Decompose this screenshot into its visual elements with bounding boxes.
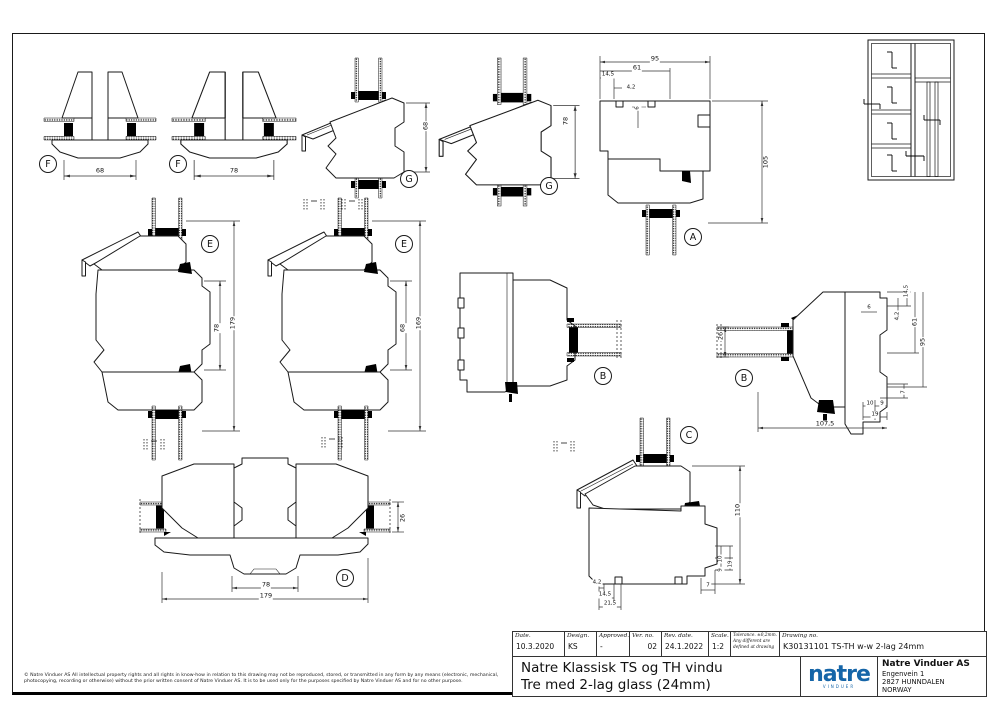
dim-g2-height: 78 xyxy=(563,116,570,126)
section-label-f1: F xyxy=(39,155,57,173)
logo-cell: natre VINDUER xyxy=(800,656,878,697)
dim-e2-inner: 68 xyxy=(400,323,407,333)
drawing-title-line1: Natre Klassisk TS og TH vindu xyxy=(513,657,800,677)
dim-a-4-2: 4,2 xyxy=(626,85,637,92)
field-approved: Approved. - xyxy=(596,631,630,657)
dim-b2-95: 95 xyxy=(920,337,927,347)
dim-g1-height: 68 xyxy=(423,121,430,131)
glass-break-mark xyxy=(138,438,170,452)
dim-a-105: 105 xyxy=(763,155,770,169)
dim-d-glass: 26 xyxy=(400,513,407,523)
dim-c-4-2: 4,2 xyxy=(592,580,603,587)
field-drawing-no: Drawing no. K30131101 TS-TH w-w 2-lag 24… xyxy=(779,631,987,657)
dim-b2-10: 10 xyxy=(866,401,875,408)
tolerance-line1: Tolerance. ±0,2mm. xyxy=(731,632,779,638)
field-date: Date. 10.3.2020 xyxy=(512,631,565,657)
glass-break-mark xyxy=(336,198,368,212)
section-label-e2: E xyxy=(395,235,413,253)
dim-c-10: 10 xyxy=(718,555,725,564)
field-approved-value: - xyxy=(597,640,629,651)
section-cut-marks xyxy=(864,52,940,171)
field-ver-no: Ver. no. 02 xyxy=(629,631,662,657)
section-label-d: D xyxy=(336,569,354,587)
dim-a-61: 61 xyxy=(632,65,642,72)
drawing-no-value: K30131101 TS-TH w-w 2-lag 24mm xyxy=(780,640,986,651)
dim-e1-inner: 78 xyxy=(214,323,221,333)
section-label-e1: E xyxy=(201,235,219,253)
section-g2-drawing xyxy=(437,58,585,206)
dim-b2-glass: 26 xyxy=(718,331,725,341)
dim-f1-width: 68 xyxy=(95,168,105,175)
glass-break-mark xyxy=(298,198,330,212)
dim-d-total: 179 xyxy=(259,593,273,600)
dim-c-21-5: 21,5 xyxy=(603,601,617,608)
company-address1: Engenvein 1 xyxy=(878,670,986,678)
section-label-b1: B xyxy=(594,367,612,385)
section-label-a: A xyxy=(684,228,702,246)
field-date-label: Date. xyxy=(513,632,564,640)
dim-c-9: 9 xyxy=(718,567,725,573)
field-ver-no-value: 02 xyxy=(630,640,661,651)
company-address2: 2827 HUNNDALEN xyxy=(878,678,986,686)
copyright-line1: © Natre Vinduer AS All intellectual prop… xyxy=(24,673,504,679)
section-label-c: C xyxy=(680,426,698,444)
dim-e2-total: 169 xyxy=(416,316,423,330)
dim-c-14-5: 14,5 xyxy=(598,592,612,599)
field-scale: Scale. 1:2 xyxy=(708,631,731,657)
dim-f2-width: 78 xyxy=(229,168,239,175)
company-address3: NORWAY xyxy=(878,686,986,694)
dim-a-6: 6 xyxy=(635,105,642,111)
field-rev-date: Rev. date. 24.1.2022 xyxy=(661,631,709,657)
field-design-value: KS xyxy=(565,640,596,651)
copyright-notice: © Natre Vinduer AS All intellectual prop… xyxy=(24,673,504,685)
field-design-label: Design. xyxy=(565,632,596,640)
copyright-line2: photocopying, recording or otherwise) wi… xyxy=(24,679,504,685)
field-design: Design. KS xyxy=(564,631,597,657)
tolerance-line3: defined at drawing xyxy=(731,644,779,650)
glass-break-mark xyxy=(548,440,580,454)
dim-a-14-5: 14,5 xyxy=(601,72,615,79)
dim-d-inner: 78 xyxy=(261,582,271,589)
window-elevation-keyplan xyxy=(866,38,961,186)
dim-b2-19: 19 xyxy=(871,412,880,419)
field-scale-value: 1:2 xyxy=(709,640,730,651)
company-cell: Natre Vinduer AS Engenvein 1 2827 HUNNDA… xyxy=(877,656,987,697)
section-a-drawing xyxy=(598,50,773,256)
dim-b2-7: 7 xyxy=(901,389,908,395)
dim-c-7: 7 xyxy=(705,583,711,590)
dim-b2-total: 107,5 xyxy=(815,421,836,428)
natre-logo: natre xyxy=(801,664,877,686)
dim-c-110: 110 xyxy=(735,503,742,517)
section-label-f2: F xyxy=(169,155,187,173)
dim-b2-61: 61 xyxy=(912,317,919,327)
field-rev-date-value: 24.1.2022 xyxy=(662,640,708,651)
field-ver-no-label: Ver. no. xyxy=(630,632,661,640)
field-date-value: 10.3.2020 xyxy=(513,640,564,651)
dim-e1-total: 179 xyxy=(230,316,237,330)
dim-b2-4-2: 4,2 xyxy=(895,311,902,322)
field-approved-label: Approved. xyxy=(597,632,629,640)
company-name: Natre Vinduer AS xyxy=(878,657,986,670)
dim-b2-14-5: 14,5 xyxy=(904,284,911,298)
natre-logo-sub: VINDUER xyxy=(801,684,877,689)
drawing-title-line2: Tre med 2-lag glass (24mm) xyxy=(513,677,800,694)
dim-a-95: 95 xyxy=(650,56,660,63)
drawing-sheet: F F G G A E E B B C D 68 78 68 78 95 61 … xyxy=(0,0,1000,707)
section-label-b2: B xyxy=(735,369,753,387)
dim-b2-6: 6 xyxy=(866,305,872,312)
glass-break-mark xyxy=(316,436,348,450)
field-tolerance: Tolerance. ±0,2mm. Any different are def… xyxy=(730,631,780,657)
section-d-drawing xyxy=(138,452,408,612)
dim-b2-9: 9 xyxy=(879,401,885,408)
section-label-g2: G xyxy=(540,177,558,195)
drawing-no-label: Drawing no. xyxy=(780,632,986,640)
section-label-g1: G xyxy=(400,170,418,188)
field-scale-label: Scale. xyxy=(709,632,730,640)
field-rev-date-label: Rev. date. xyxy=(662,632,708,640)
dim-c-19: 19 xyxy=(728,560,735,569)
drawing-title-cell: Natre Klassisk TS og TH vindu Tre med 2-… xyxy=(512,656,801,697)
